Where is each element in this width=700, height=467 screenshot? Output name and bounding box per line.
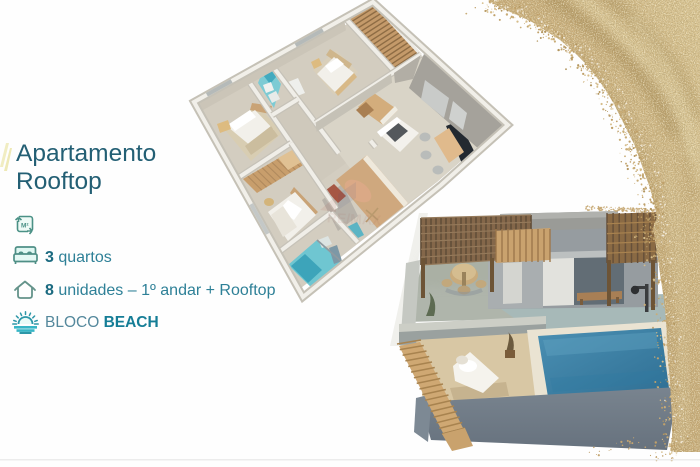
svg-text:RE/MAX: RE/MAX [326, 209, 382, 228]
